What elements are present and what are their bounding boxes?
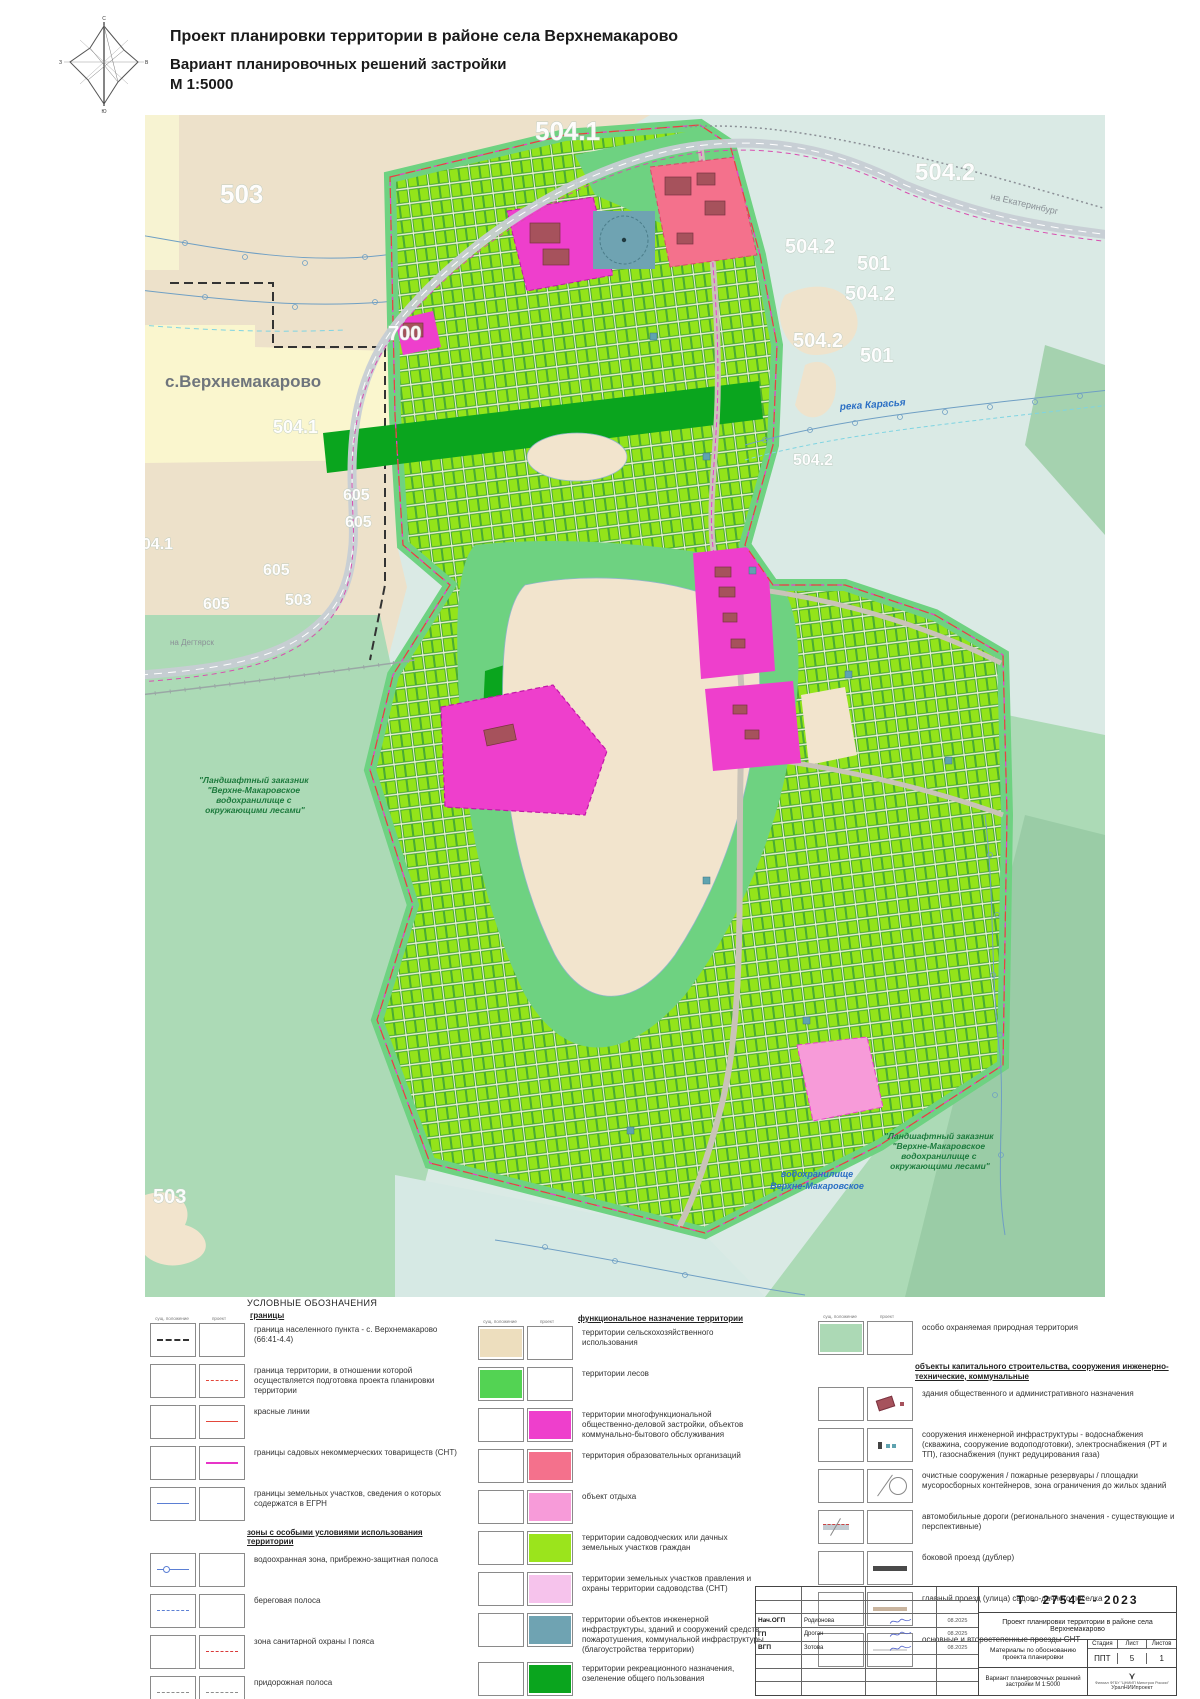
road-direction-label: на Дегтярск xyxy=(170,638,214,647)
stamp-name: Зотова xyxy=(802,1642,866,1655)
stamp-signature-table: Нач.ОГП Родионова 08.2025 ГП Дроган 08.2… xyxy=(756,1587,979,1695)
legend-swatch-project xyxy=(527,1613,573,1647)
sheet-value: 5 xyxy=(1118,1653,1148,1664)
stamp-role: ГП xyxy=(756,1628,802,1641)
legend-col-existing: сущ. положение xyxy=(818,1314,862,1319)
signature-scribble xyxy=(866,1642,937,1655)
title-block: Нач.ОГП Родионова 08.2025 ГП Дроган 08.2… xyxy=(755,1586,1177,1696)
legend-item-label: объект отдыха xyxy=(582,1490,764,1524)
village-label: с.Верхнемакарово xyxy=(165,372,321,391)
document-type: Материалы по обоснованию проекта планиро… xyxy=(979,1640,1088,1667)
legend-swatch-existing xyxy=(478,1449,524,1483)
plan-sheet: С Ю З В Проект планировки территории в р… xyxy=(0,0,1200,1699)
legend-item-label: граница территории, в отношении которой … xyxy=(254,1364,462,1398)
org-logo-icon: ⋎ xyxy=(1129,1672,1136,1681)
legend-item-label: особо охраняемая природная территория xyxy=(922,1321,1175,1355)
legend-swatch-existing xyxy=(818,1428,864,1462)
legend-title: УСЛОВНЫЕ ОБОЗНАЧЕНИЯ xyxy=(247,1298,462,1308)
legend-row: особо охраняемая природная территория xyxy=(818,1321,1175,1355)
legend-row: береговая полоса xyxy=(150,1594,462,1628)
legend-row: территории садоводческих или дачных земе… xyxy=(478,1531,764,1565)
legend-row: территории объектов инженерной инфрастру… xyxy=(478,1613,764,1655)
legend-item-label: территории многофункциональной обществен… xyxy=(582,1408,764,1442)
legend-item-label: береговая полоса xyxy=(254,1594,462,1628)
legend-swatch-project xyxy=(867,1387,913,1421)
cadastral-label: 504.1 xyxy=(145,536,173,553)
legend-functional-list: территории сельскохозяйственного использ… xyxy=(478,1326,764,1699)
sheet-scale: М 1:5000 xyxy=(170,76,233,93)
reservoir-label: Верхне-Макаровское xyxy=(770,1181,864,1191)
stage-value: ППТ xyxy=(1088,1653,1118,1664)
stamp-name: Дроган xyxy=(802,1628,866,1641)
legend-swatch-project xyxy=(867,1510,913,1544)
legend-row: граница населенного пункта - с. Верхнема… xyxy=(150,1323,462,1357)
legend-swatch-existing xyxy=(478,1531,524,1565)
legend-swatch-project xyxy=(199,1446,245,1480)
legend-row: боковой проезд (дублер) xyxy=(818,1551,1175,1585)
legend-row: красные линии xyxy=(150,1405,462,1439)
legend-row: территория образовательных организаций xyxy=(478,1449,764,1483)
legend-item-label: граница населенного пункта - с. Верхнема… xyxy=(254,1323,462,1357)
legend-protected-list: особо охраняемая природная территория xyxy=(818,1321,1175,1355)
legend-col-project: проект xyxy=(525,1319,569,1324)
legend-item-label: территории лесов xyxy=(582,1367,764,1401)
org-name-label: УралНИИпроект xyxy=(1111,1685,1153,1691)
legend-swatch-existing xyxy=(150,1323,196,1357)
compass-east-label: В xyxy=(145,60,149,66)
legend-col-project: проект xyxy=(865,1314,909,1319)
legend-swatch-existing xyxy=(818,1321,864,1355)
legend-item-label: территории сельскохозяйственного использ… xyxy=(582,1326,764,1360)
legend-swatch-existing xyxy=(150,1635,196,1669)
document-code: Т - 2754Е - 2023 xyxy=(979,1587,1176,1613)
legend-swatch-project xyxy=(527,1662,573,1696)
legend-swatch-project xyxy=(199,1553,245,1587)
legend-row: территории многофункциональной обществен… xyxy=(478,1408,764,1442)
cadastral-label: 503 xyxy=(153,1186,186,1208)
legend-swatch-project xyxy=(867,1551,913,1585)
legend-col-project: проект xyxy=(197,1316,241,1321)
legend-swatch-project xyxy=(867,1428,913,1462)
legend-swatch-existing xyxy=(478,1408,524,1442)
legend-swatch-project xyxy=(527,1408,573,1442)
legend-row: придорожная полоса xyxy=(150,1676,462,1699)
legend-item-label: здания общественного и административного… xyxy=(922,1387,1175,1421)
legend-swatch-project xyxy=(527,1449,573,1483)
sheets-value: 1 xyxy=(1147,1653,1176,1664)
legend-swatch-existing xyxy=(818,1387,864,1421)
cadastral-label: 504.2 xyxy=(915,159,975,186)
legend-row: границы садовых некоммерческих товарищес… xyxy=(150,1446,462,1480)
legend-row: сооружения инженерной инфраструктуры - в… xyxy=(818,1428,1175,1462)
stamp-row: Нач.ОГП Родионова 08.2025 xyxy=(756,1614,978,1628)
legend-swatch-existing xyxy=(478,1662,524,1696)
legend-swatch-existing xyxy=(150,1364,196,1398)
legend-swatch-project xyxy=(527,1367,573,1401)
signature-scribble xyxy=(866,1614,937,1627)
sheets-label: Листов xyxy=(1147,1640,1176,1648)
cadastral-label: 700 xyxy=(388,323,421,345)
cadastral-label: 504.2 xyxy=(845,283,895,305)
legend-swatch-project xyxy=(199,1364,245,1398)
legend-item-label: территория образовательных организаций xyxy=(582,1449,764,1483)
compass-north-label: С xyxy=(102,16,106,22)
legend-item-label: очистные сооружения / пожарные резервуар… xyxy=(922,1469,1175,1503)
legend-item-label: территории рекреационного назначения, оз… xyxy=(582,1662,764,1696)
stamp-date: 08.2025 xyxy=(937,1628,978,1641)
cadastral-label: 501 xyxy=(857,253,890,275)
sheet-name: Вариант планировочных решений застройки … xyxy=(979,1668,1088,1695)
reservoir-label: водохранилище xyxy=(781,1169,853,1179)
legend-item-label: территории садоводческих или дачных земе… xyxy=(582,1531,764,1565)
legend-section-functional: функциональное назначение территории xyxy=(578,1314,764,1324)
legend-swatch-existing xyxy=(478,1367,524,1401)
cadastral-label: 605 xyxy=(263,562,290,579)
legend-swatch-existing xyxy=(818,1551,864,1585)
stamp-date: 08.2025 xyxy=(937,1642,978,1655)
legend-swatch-project xyxy=(527,1572,573,1606)
stage-label: Стадия xyxy=(1088,1640,1118,1648)
legend-item-label: территории земельных участков правления … xyxy=(582,1572,764,1606)
legend-row: границы земельных участков, сведения о к… xyxy=(150,1487,462,1521)
compass-west-label: З xyxy=(59,60,62,66)
legend-row: территории сельскохозяйственного использ… xyxy=(478,1326,764,1360)
legend-row: территории земельных участков правления … xyxy=(478,1572,764,1606)
cadastral-label: 503 xyxy=(285,592,312,609)
legend-section-zones: зоны с особыми условиями использования т… xyxy=(247,1528,462,1547)
legend-swatch-project xyxy=(199,1676,245,1699)
legend-swatch-existing xyxy=(150,1405,196,1439)
cadastral-label: 504.2 xyxy=(793,330,843,352)
legend-swatch-existing xyxy=(478,1572,524,1606)
cadastral-label: 605 xyxy=(345,514,372,531)
legend-zones-list: водоохранная зона, прибрежно-защитная по… xyxy=(150,1553,462,1699)
legend-borders-list: граница населенного пункта - с. Верхнема… xyxy=(150,1323,462,1521)
legend-section-capital: объекты капитального строительства, соор… xyxy=(915,1362,1175,1381)
stamp-date: 08.2025 xyxy=(937,1614,978,1627)
legend-column-borders: УСЛОВНЫЕ ОБОЗНАЧЕНИЯ сущ. положение прое… xyxy=(150,1298,462,1699)
compass-rose: С Ю З В xyxy=(56,14,152,114)
legend-swatch-project xyxy=(867,1469,913,1503)
legend-item-label: боковой проезд (дублер) xyxy=(922,1551,1175,1585)
legend-row: здания общественного и административного… xyxy=(818,1387,1175,1421)
legend-swatch-project xyxy=(527,1326,573,1360)
legend-row: очистные сооружения / пожарные резервуар… xyxy=(818,1469,1175,1503)
legend-swatch-existing xyxy=(478,1326,524,1360)
sheet-title: Проект планировки территории в районе се… xyxy=(170,28,678,46)
legend-swatch-existing xyxy=(150,1487,196,1521)
legend-section-borders: границы xyxy=(250,1311,462,1321)
legend-row: граница территории, в отношении которой … xyxy=(150,1364,462,1398)
legend-swatch-existing xyxy=(150,1446,196,1480)
legend-swatch-existing xyxy=(818,1469,864,1503)
legend-col-existing: сущ. положение xyxy=(478,1319,522,1324)
legend-swatch-project xyxy=(527,1490,573,1524)
cadastral-label: 504.1 xyxy=(273,417,318,437)
legend-swatch-project xyxy=(199,1323,245,1357)
legend-row: территории лесов xyxy=(478,1367,764,1401)
legend-swatch-project xyxy=(867,1321,913,1355)
legend-swatch-existing xyxy=(478,1613,524,1647)
legend-item-label: зона санитарной охраны I пояса xyxy=(254,1635,462,1669)
cadastral-label: 605 xyxy=(203,596,230,613)
legend-item-label: красные линии xyxy=(254,1405,462,1439)
stamp-name: Родионова xyxy=(802,1614,866,1627)
legend-swatch-project xyxy=(527,1531,573,1565)
legend-swatch-project xyxy=(199,1635,245,1669)
cadastral-label: 504.1 xyxy=(535,116,600,146)
sheet-label: Лист xyxy=(1118,1640,1148,1648)
legend-swatch-project xyxy=(199,1487,245,1521)
legend-swatch-existing xyxy=(478,1490,524,1524)
legend-item-label: границы садовых некоммерческих товарищес… xyxy=(254,1446,462,1480)
legend-row: зона санитарной охраны I пояса xyxy=(150,1635,462,1669)
organization-cell: ⋎ Филиал ФГБУ "ЦНИИП Минстроя России" Ур… xyxy=(1088,1668,1176,1695)
legend-item-label: придорожная полоса xyxy=(254,1676,462,1699)
compass-south-label: Ю xyxy=(101,109,106,114)
legend-swatch-existing xyxy=(150,1594,196,1628)
legend-row: территории рекреационного назначения, оз… xyxy=(478,1662,764,1696)
sheet-subtitle: Вариант планировочных решений застройки xyxy=(170,56,507,73)
legend-row: объект отдыха xyxy=(478,1490,764,1524)
signature-scribble xyxy=(866,1628,937,1641)
legend-item-label: сооружения инженерной инфраструктуры - в… xyxy=(922,1428,1175,1462)
project-name: Проект планировки территории в районе се… xyxy=(979,1613,1176,1640)
stamp-role: Нач.ОГП xyxy=(756,1614,802,1627)
cadastral-label: 605 xyxy=(343,487,370,504)
stamp-row: ВГП Зотова 08.2025 xyxy=(756,1642,978,1656)
stamp-row: ГП Дроган 08.2025 xyxy=(756,1628,978,1642)
cadastral-label: 501 xyxy=(860,345,893,367)
cadastral-label: 503 xyxy=(220,179,263,209)
legend-row: автомобильные дороги (регионального знач… xyxy=(818,1510,1175,1544)
legend-swatch-existing xyxy=(818,1510,864,1544)
legend-col-existing: сущ. положение xyxy=(150,1316,194,1321)
legend-item-label: водоохранная зона, прибрежно-защитная по… xyxy=(254,1553,462,1587)
cadastral-label: 504.2 xyxy=(785,236,835,258)
stamp-role: ВГП xyxy=(756,1642,802,1655)
legend-item-label: границы земельных участков, сведения о к… xyxy=(254,1487,462,1521)
legend-row: водоохранная зона, прибрежно-защитная по… xyxy=(150,1553,462,1587)
legend-column-functional: сущ. положение проект функциональное наз… xyxy=(478,1314,764,1699)
legend-swatch-project xyxy=(199,1594,245,1628)
legend-swatch-project xyxy=(199,1405,245,1439)
cadastral-label: 504.2 xyxy=(793,452,833,469)
site-plan-map: 504.1 503 504.2 на Екатеринбург 501 504.… xyxy=(145,115,1105,1297)
legend-item-label: территории объектов инженерной инфрастру… xyxy=(582,1613,764,1655)
legend-swatch-existing xyxy=(150,1553,196,1587)
legend-item-label: автомобильные дороги (регионального знач… xyxy=(922,1510,1175,1544)
stage-sheet-table: Стадия Лист Листов ППТ 5 1 xyxy=(1088,1640,1176,1667)
legend-swatch-existing xyxy=(150,1676,196,1699)
